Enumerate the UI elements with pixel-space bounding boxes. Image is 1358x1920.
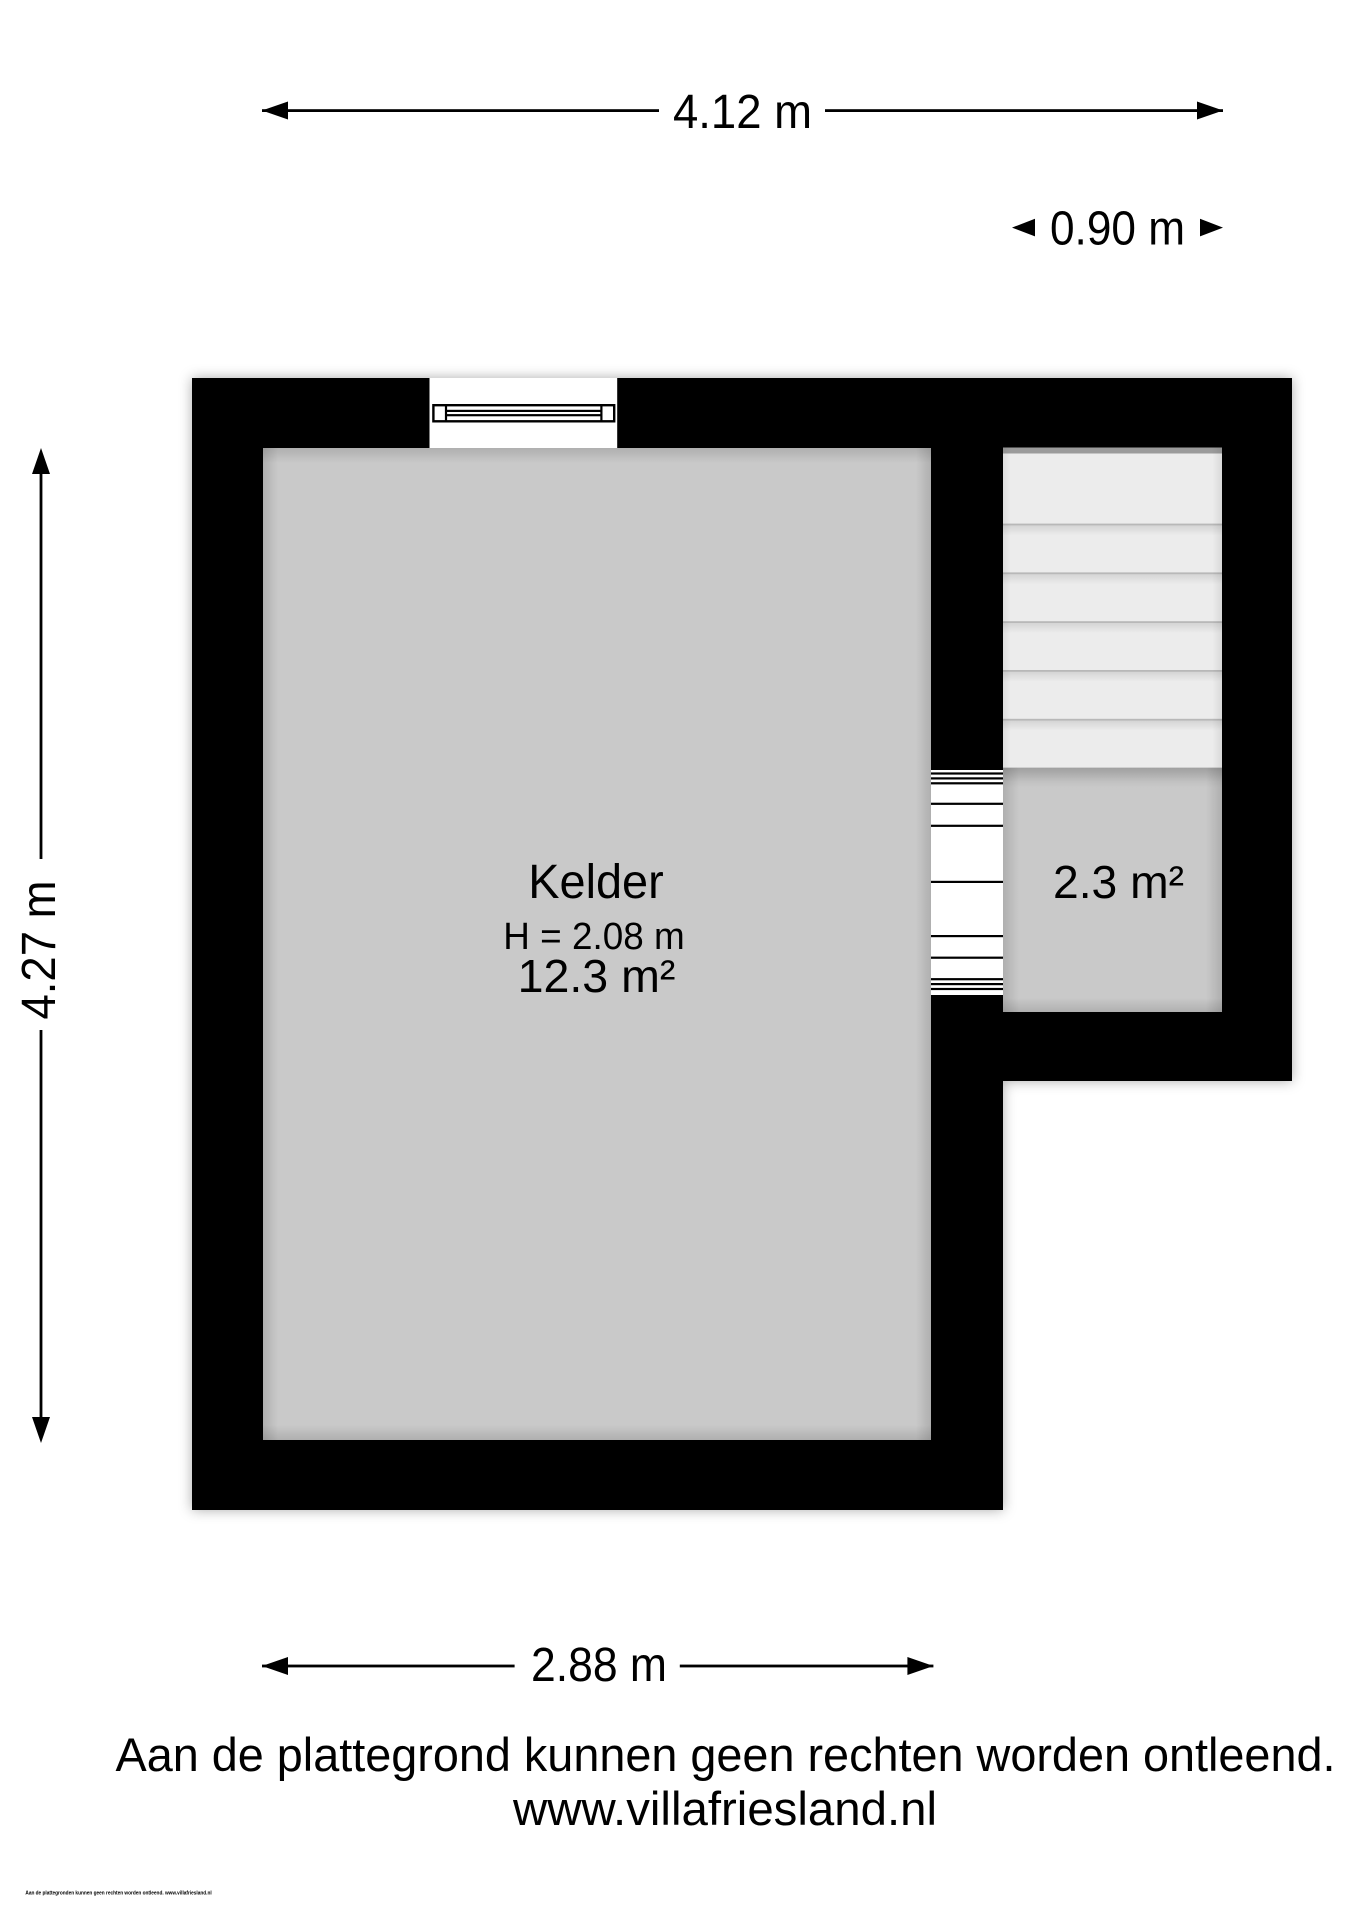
svg-text:4.27 m: 4.27 m bbox=[13, 881, 66, 1020]
svg-text:Aan de plattegrond kunnen geen: Aan de plattegrond kunnen geen rechten w… bbox=[116, 1728, 1336, 1781]
svg-text:www.villafriesland.nl: www.villafriesland.nl bbox=[512, 1782, 937, 1835]
svg-text:Aan de plattegronden kunnen ge: Aan de plattegronden kunnen geen rechten… bbox=[25, 1890, 212, 1896]
svg-text:12.3 m²: 12.3 m² bbox=[518, 950, 676, 1002]
svg-text:Kelder: Kelder bbox=[528, 856, 663, 909]
svg-text:4.12 m: 4.12 m bbox=[673, 86, 812, 139]
svg-text:2.88 m: 2.88 m bbox=[531, 1639, 667, 1692]
svg-text:2.3 m²: 2.3 m² bbox=[1053, 856, 1184, 908]
svg-text:0.90 m: 0.90 m bbox=[1050, 203, 1185, 256]
